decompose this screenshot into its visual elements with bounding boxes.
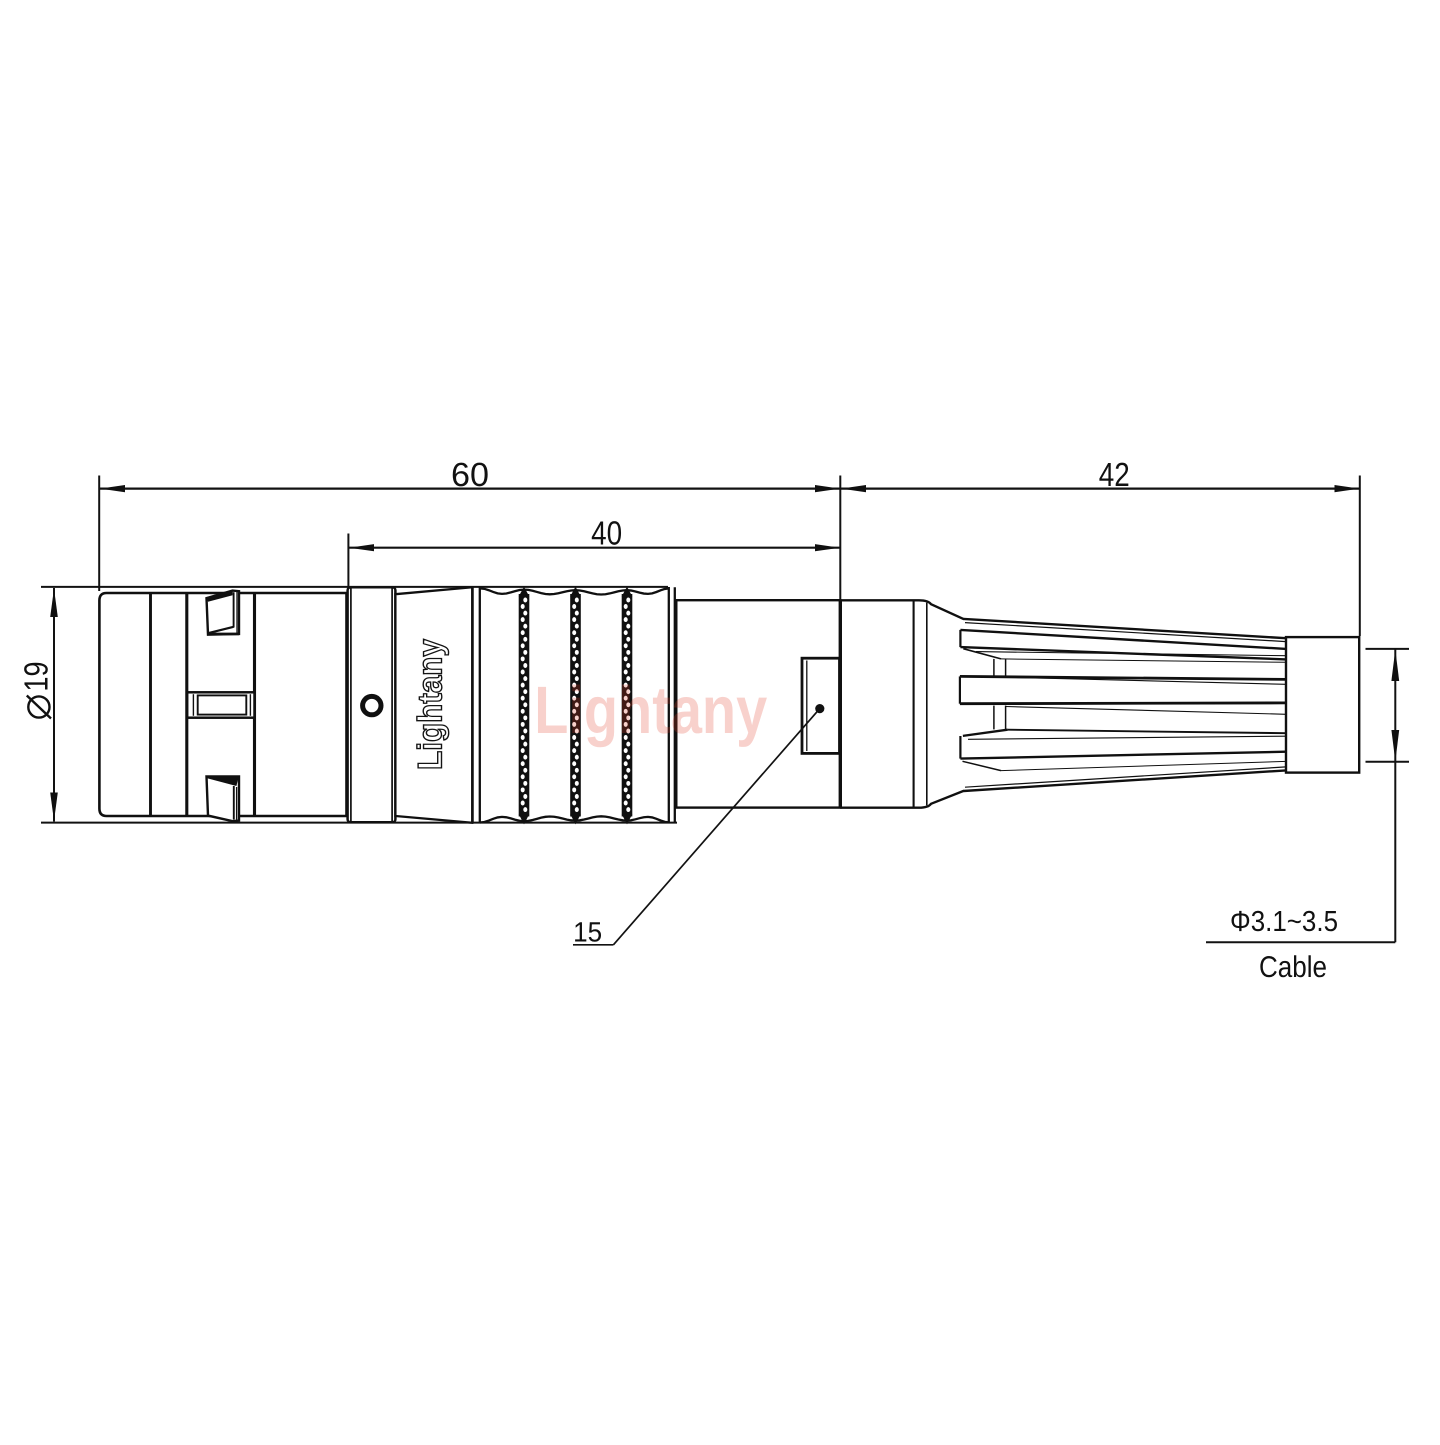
svg-text:Cable: Cable [1259,951,1327,984]
svg-text:40: 40 [591,515,622,552]
svg-text:42: 42 [1099,457,1130,494]
svg-text:Lightany: Lightany [534,673,767,748]
svg-text:Lightany: Lightany [412,639,450,770]
svg-text:19: 19 [19,662,56,692]
svg-text:Φ3.1~3.5: Φ3.1~3.5 [1230,906,1338,938]
svg-text:15: 15 [573,916,602,947]
svg-text:60: 60 [451,457,489,494]
